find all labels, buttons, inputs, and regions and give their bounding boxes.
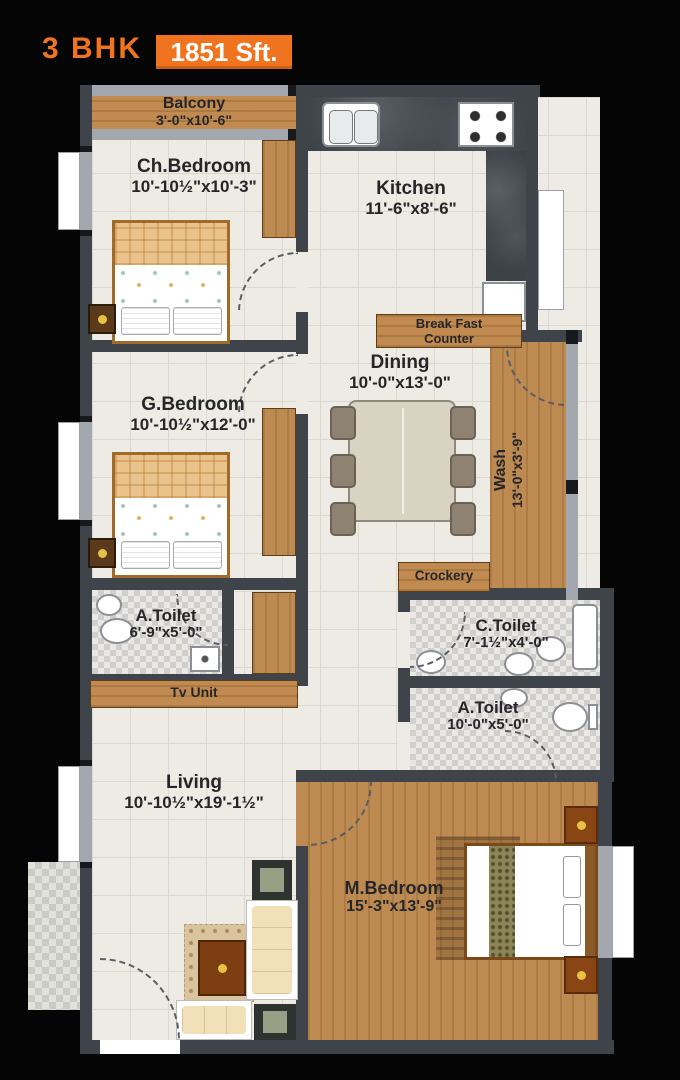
sink-basin	[354, 110, 378, 144]
entrance-gap	[100, 1040, 180, 1054]
nightstand-g	[88, 538, 116, 568]
balcony-french-window	[80, 129, 296, 140]
door-gap-ctoilet	[398, 612, 410, 668]
window-jamb	[80, 146, 92, 152]
sill-kitchen	[538, 190, 564, 310]
sofa-cushion	[252, 906, 292, 994]
wall-kitchen-right	[526, 85, 538, 334]
dining-chair	[450, 454, 476, 488]
bed-ch-bedroom	[112, 220, 230, 344]
window-jamb	[566, 330, 578, 344]
window-g-left	[80, 422, 92, 520]
nightstand-mbed	[564, 806, 598, 844]
bed-blanket	[115, 455, 227, 498]
side-table-top	[263, 1011, 287, 1033]
basin-ctoilet-2	[504, 652, 534, 676]
coffee-table	[198, 940, 246, 996]
window-jamb	[80, 862, 92, 868]
area-badge: 1851 Sft.	[156, 35, 292, 69]
window-ch-left	[80, 152, 92, 230]
window-jamb	[80, 760, 92, 766]
knob	[577, 971, 586, 980]
wall-wash-right	[566, 330, 578, 600]
bed-g-bedroom	[112, 452, 230, 578]
dining-table	[348, 400, 456, 522]
sitout-pad	[28, 862, 86, 1010]
bed-mbedroom	[464, 843, 598, 960]
cupboard-passage	[252, 592, 296, 674]
sofa-long	[246, 900, 298, 1000]
pillow	[173, 541, 222, 569]
shower-atoiletL	[190, 646, 220, 672]
pillow	[563, 856, 581, 898]
label-m-bedroom: M.Bedroom 15'-3"x13'-9"	[314, 878, 474, 916]
window-mbed-right	[598, 846, 612, 958]
wall-top	[296, 85, 540, 97]
plan-title: 3 BHK	[42, 32, 142, 66]
knob	[98, 315, 107, 324]
pillow	[563, 904, 581, 946]
bed-sheet	[115, 498, 227, 544]
knob	[218, 964, 227, 973]
pillow	[121, 307, 170, 335]
pillow	[173, 307, 222, 335]
side-table-top	[260, 868, 284, 892]
label-c-toilet: C.Toilet 7'-1½"x4'-0"	[428, 616, 584, 652]
window-jamb	[566, 480, 578, 494]
label-living: Living 10'-10½"x19'-1½"	[88, 772, 300, 812]
window-jamb	[80, 520, 92, 526]
knob	[98, 549, 107, 558]
nightstand-ch	[88, 304, 116, 334]
sill-living	[58, 766, 80, 862]
floor-plan: 3 BHK 1851 Sft.	[0, 0, 680, 1080]
stove	[458, 102, 514, 147]
wc-tank-atoiletR	[588, 704, 598, 730]
dining-chair	[330, 502, 356, 536]
window-jamb	[288, 129, 296, 140]
table-center-line	[402, 408, 404, 514]
sill-ch	[58, 152, 80, 230]
sill-mbed	[612, 846, 634, 958]
pillow	[121, 541, 170, 569]
label-balcony: Balcony 3'-0"x10'-6"	[96, 95, 292, 129]
door-gap-atoiletR	[398, 722, 410, 770]
label-breakfast-counter: Break Fast Counter	[376, 317, 522, 346]
headboard	[585, 846, 595, 957]
window-jamb	[80, 230, 92, 236]
wall-toilets-right	[600, 588, 614, 782]
wall-toilets-mid	[398, 676, 614, 688]
dining-chair	[330, 454, 356, 488]
wall-g-bottom	[80, 578, 308, 590]
bed-runner	[489, 846, 515, 957]
dining-chair	[450, 502, 476, 536]
dining-chair	[450, 406, 476, 440]
sofa-single	[176, 1000, 252, 1040]
wall-mbedroom-top	[296, 770, 614, 782]
sill-g	[58, 422, 80, 520]
label-wash: Wash 13'-0"x3'-9"	[492, 400, 548, 540]
side-table	[254, 1004, 296, 1040]
label-ch-bedroom: Ch.Bedroom 10'-10½"x10'-3"	[92, 156, 296, 196]
label-a-toilet-left: A.Toilet 6'-9"x5'-0"	[88, 606, 244, 642]
label-kitchen: Kitchen 11'-6"x8'-6"	[326, 178, 496, 218]
knob	[577, 821, 586, 830]
label-tv-unit: Tv Unit	[90, 685, 298, 701]
label-g-bedroom: G.Bedroom 10'-10½"x12'-0"	[86, 394, 300, 434]
nightstand-mbed	[564, 956, 598, 994]
label-a-toilet-right: A.Toilet 10'-0"x5'-0"	[412, 698, 564, 734]
sofa-cushion	[182, 1006, 246, 1034]
bed-blanket	[115, 223, 227, 265]
label-dining: Dining 10'-0"x13'-0"	[312, 352, 488, 392]
sink-basin	[329, 110, 353, 144]
kitchen-sink	[322, 102, 380, 147]
dining-chair	[330, 406, 356, 440]
label-crockery: Crockery	[398, 568, 490, 583]
side-table	[252, 860, 292, 900]
bed-sheet	[115, 265, 227, 310]
